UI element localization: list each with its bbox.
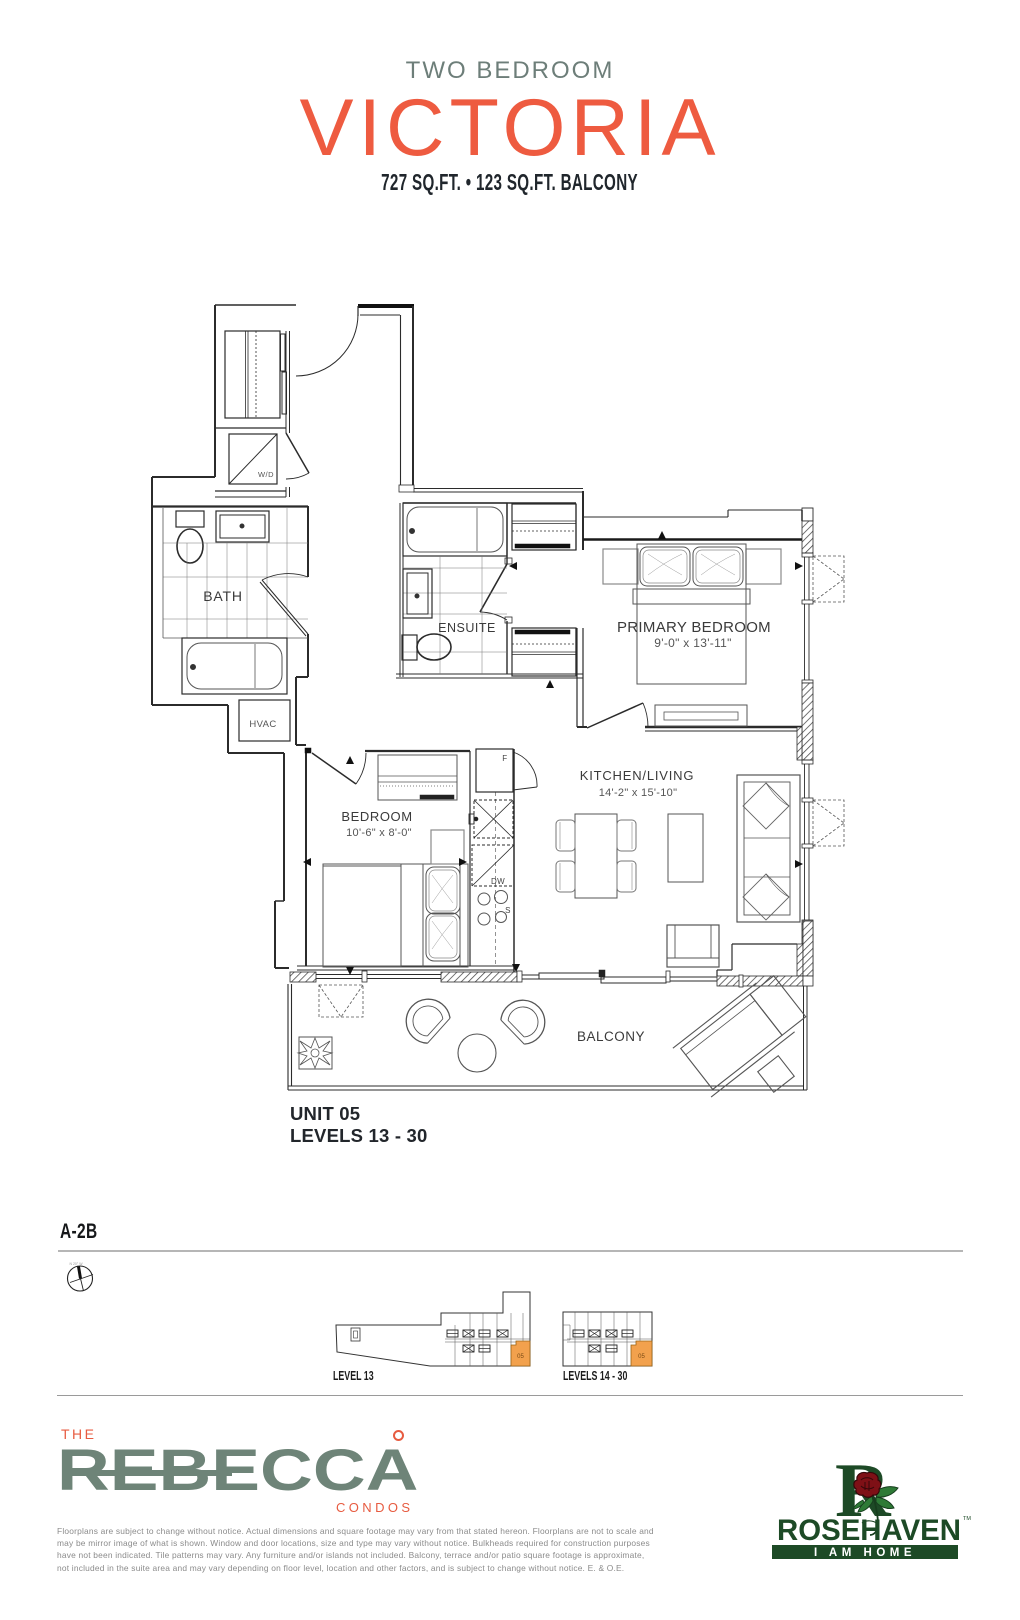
svg-text:9'-0" x 13'-11": 9'-0" x 13'-11" [654,636,731,650]
svg-text:F: F [502,754,507,763]
svg-text:I AM HOME: I AM HOME [814,1547,916,1559]
svg-text:PRIMARY BEDROOM: PRIMARY BEDROOM [617,619,771,636]
svg-text:10'-6" x 8'-0": 10'-6" x 8'-0" [346,827,412,839]
svg-text:TM: TM [963,1516,971,1522]
svg-text:DW: DW [491,877,505,886]
svg-text:HVAC: HVAC [249,719,276,730]
svg-text:05: 05 [638,1354,645,1360]
svg-text:N 20° W: N 20° W [69,1262,83,1266]
svg-text:BEDROOM: BEDROOM [341,809,412,824]
svg-text:BALCONY: BALCONY [577,1029,645,1044]
svg-text:W/D: W/D [258,470,274,479]
svg-text:14'-2" x 15'-10": 14'-2" x 15'-10" [599,787,678,799]
svg-text:ENSUITE: ENSUITE [438,621,496,635]
svg-text:ROSEHAVEN: ROSEHAVEN [777,1514,961,1547]
svg-text:05: 05 [517,1354,524,1360]
svg-text:S: S [505,906,511,915]
svg-text:BATH: BATH [203,588,243,604]
svg-text:KITCHEN/LIVING: KITCHEN/LIVING [580,768,695,783]
